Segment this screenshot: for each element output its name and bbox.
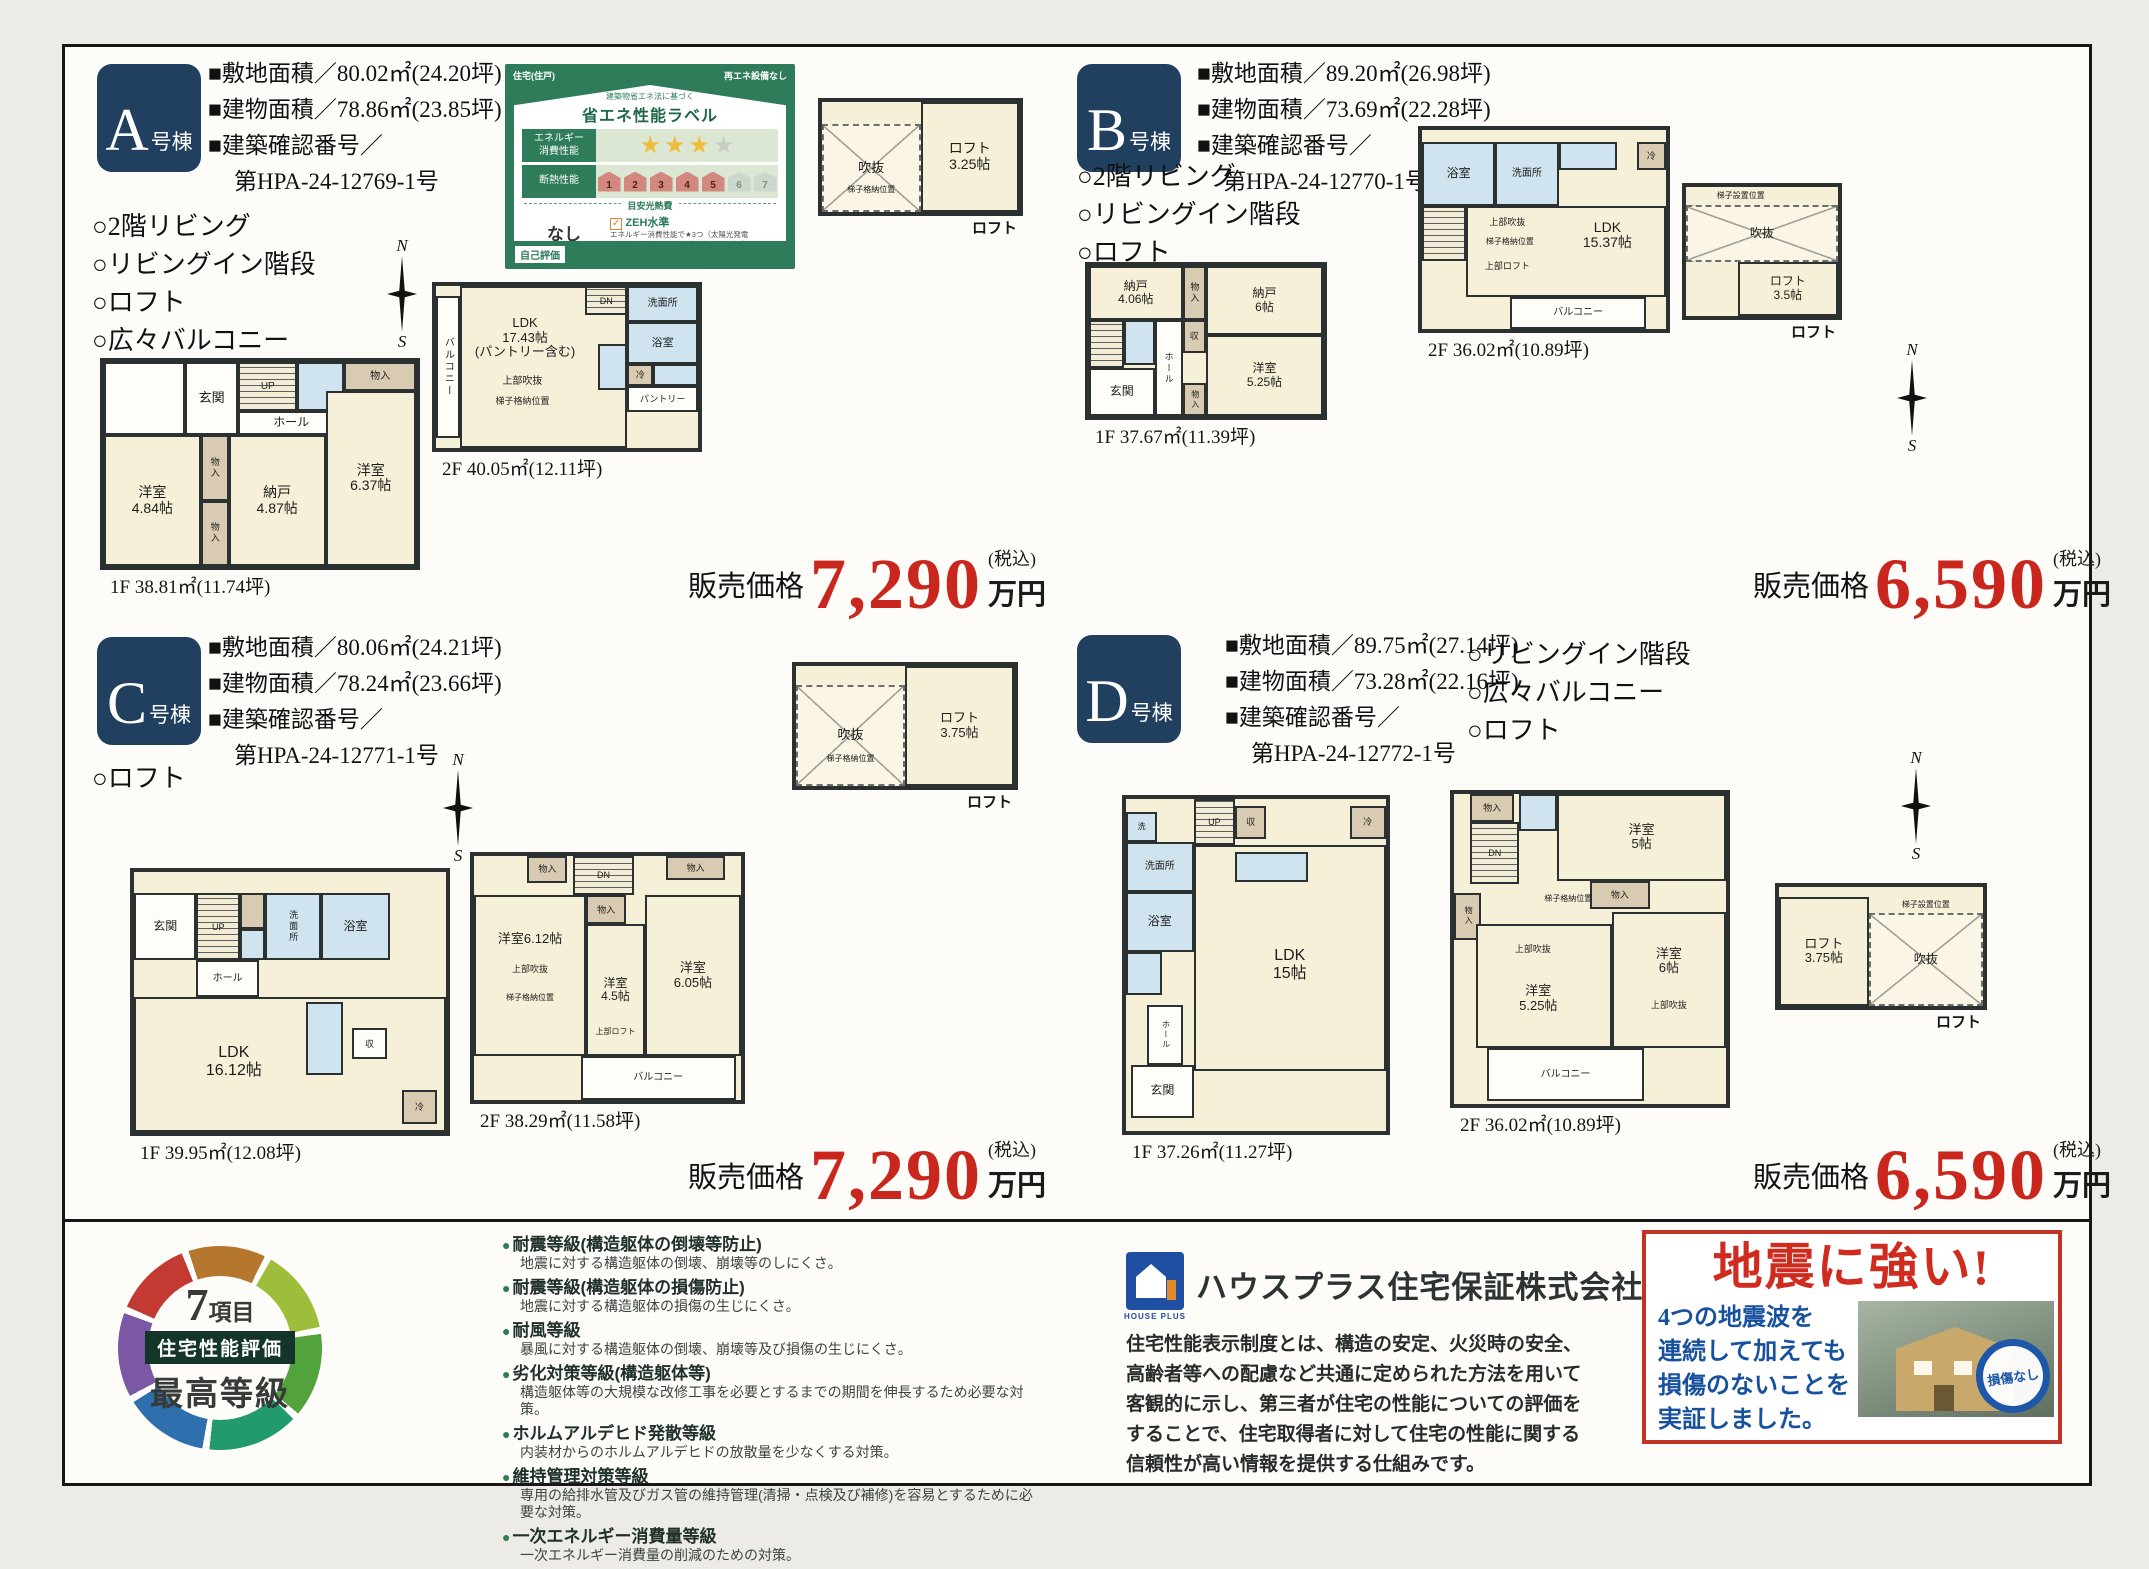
plan-room: [1089, 320, 1124, 368]
compass-south-label: S: [1894, 844, 1938, 864]
price-unit: 万円: [2053, 1162, 2111, 1204]
floor-plan-d-1f: 洗UP収冷洗面所浴室LDK 15帖ホール玄関1F 37.26㎡(11.27坪): [1122, 795, 1390, 1135]
building-d-letter: D: [1085, 676, 1128, 727]
feature-line: ○広々バルコニー: [92, 322, 316, 360]
compass-north-label: N: [436, 750, 480, 770]
plan-room: 吹抜: [822, 124, 921, 212]
plan-room: [1126, 952, 1162, 995]
plan-room: 玄関: [134, 893, 196, 961]
spec-line: ■建築確認番号／: [208, 128, 502, 164]
plan-room: ロフト 3.75帖: [1779, 897, 1869, 1006]
building-b-suffix: 号棟: [1129, 126, 1171, 156]
compass-south-label: S: [380, 332, 424, 352]
floor-caption: 1F 37.67㎡(11.39坪): [1095, 422, 1255, 449]
price-value: 7,290: [810, 551, 982, 617]
plan-room: [306, 1002, 343, 1075]
price-b: 販売価格 6,590 (税込)万円: [1753, 545, 2111, 617]
plan-room: ロフト 3.5帖: [1738, 262, 1838, 316]
zeh-check-icon: ✓: [610, 218, 622, 230]
performance-title: 耐震等級(構造躯体の倒壊等防止): [502, 1234, 1042, 1255]
building-b-badge: B号棟: [1077, 64, 1181, 172]
plan-room: 物入: [666, 856, 725, 880]
plan-room: 洗: [1126, 812, 1157, 842]
plan-room: 上部ロフト: [1471, 257, 1544, 275]
plan-room: 浴室: [321, 893, 390, 961]
plan-room: 洋室 5.25帖: [1206, 335, 1323, 416]
energy-label-subtitle: 建築物省エネ法に基づく: [514, 91, 786, 102]
zeh-note: は考慮しない）、かつ断熱性能で5を達成: [610, 240, 778, 250]
plan-room: バルコニー: [1487, 1048, 1645, 1101]
plan-room: 洋室6.12帖: [479, 924, 580, 953]
performance-item: ホルムアルデヒド発散等級 内装材からのホルムアルデヒドの放散量を少なくする対策。: [502, 1423, 1042, 1461]
price-value: 7,290: [810, 1142, 982, 1208]
floor-caption: 1F 39.95㎡(12.08坪): [140, 1138, 301, 1165]
insulation-level-icon: 7: [754, 172, 777, 192]
cost-divider: 目安光熱費: [524, 203, 776, 210]
plan-room: [1559, 142, 1618, 170]
plan-room: 梯子格納位置: [800, 752, 900, 765]
performance-title: 一次エネルギー消費量等級: [502, 1526, 1042, 1547]
spec-line: ■建物面積／78.24㎡(23.66坪): [208, 666, 502, 702]
plan-room: LDK 17.43帖 (パントリー含む): [467, 309, 582, 367]
compass-star: [387, 256, 417, 332]
plan-room: 納戸 6帖: [1206, 266, 1323, 335]
floor-caption: 1F 38.81㎡(11.74坪): [110, 572, 270, 599]
price-tax: (税込): [988, 1136, 1036, 1162]
plan-room: 梯子設置位置: [1692, 190, 1789, 204]
loft-caption: ロフト: [1936, 1011, 1981, 1032]
plan-room: 洗面所: [265, 893, 321, 961]
plan-room: 物入: [1470, 794, 1514, 822]
plan-room: 物入: [201, 435, 229, 500]
zeh-note: エネルギー消費性能で★3つ（太陽光発電: [610, 230, 778, 240]
spec-line: ■敷地面積／80.02㎡(24.20坪): [208, 56, 502, 92]
plan-room: 物入: [527, 856, 567, 883]
performance-item: 耐震等級(構造躯体の損傷防止) 地震に対する構造躯体の損傷の生じにくさ。: [502, 1277, 1042, 1315]
plan-room: 玄関: [1089, 368, 1155, 416]
plan-room: バルコニー: [581, 1056, 736, 1100]
earthquake-claim: 4つの地震波を 連続して加えても 損傷のないことを 実証しました。: [1658, 1301, 1850, 1437]
plan-room: [653, 364, 698, 387]
performance-item: 劣化対策等級(構造躯体等) 構造躯体等の大規模な改修工事を必要とするまでの期間を…: [502, 1363, 1042, 1418]
insulation-level-icon: 6: [728, 172, 751, 192]
plan-room: 上部吹抜: [485, 958, 576, 980]
building-c-badge: C号棟: [97, 637, 201, 745]
floor-plan-c-2f: 物入DN物入洋室6.12帖上部吹抜梯子格納位置物入洋室 4.5帖上部ロフト洋室 …: [470, 852, 745, 1104]
star-icon: ★: [639, 134, 661, 158]
plan-room: バルコニー: [436, 296, 460, 439]
insulation-label: 断熱性能: [522, 165, 596, 198]
plan-room: 納戸 4.87帖: [229, 435, 326, 566]
plan-room: 物入: [1183, 383, 1206, 416]
compass-icon: N S: [436, 750, 480, 866]
plan-room: DN: [585, 286, 627, 315]
compass-star: [1897, 360, 1927, 436]
spec-line: ■建物面積／73.69㎡(22.28坪): [1197, 92, 1491, 128]
plan-room: [240, 893, 265, 929]
plan-room: 上部吹抜: [1471, 214, 1544, 232]
price-label: 販売価格: [688, 563, 804, 617]
plan-room: 玄関: [185, 362, 238, 435]
performance-desc: 専用の給排水管及びガス管の維持管理(清掃・点検及び補修)を容易とするために必要な…: [502, 1487, 1042, 1521]
plan-room: 冷: [1350, 806, 1386, 839]
plan-room: 洋室 6.05帖: [645, 895, 741, 1056]
feature-line: ○2階リビング: [1077, 158, 1301, 196]
plan-room: 冷: [627, 364, 653, 387]
feature-line: ○2階リビング: [92, 208, 316, 246]
plan-room: 浴室: [1126, 892, 1194, 952]
energy-label-corner-left: 住宅(住戸): [513, 69, 555, 82]
compass-north-label: N: [1894, 748, 1938, 768]
self-evaluation-tag: 自己評価: [515, 246, 565, 263]
insulation-level-icon: 1: [598, 172, 621, 192]
plan-room: 吹抜: [796, 685, 905, 786]
plan-room: 梯子格納位置: [482, 988, 578, 1010]
plan-room: 物入: [1183, 266, 1206, 320]
energy-label-title: 省エネ性能ラベル: [514, 102, 786, 126]
feature-line: ○広々バルコニー: [1467, 674, 1691, 712]
building-d-suffix: 号棟: [1131, 697, 1173, 727]
plan-room: UP: [238, 362, 297, 411]
feature-line: ○ロフト: [1467, 712, 1691, 750]
floor-caption: 2F 36.02㎡(10.89坪): [1428, 335, 1589, 362]
floor-plan-d-2f: 物入DN洋室 5帖物入梯子格納位置物入上部吹抜洋室 5.25帖洋室 6帖上部吹抜…: [1450, 790, 1730, 1108]
badge-number-label: 項目: [209, 1300, 255, 1325]
floor-plan-b-1f: 納戸 4.06帖物入納戸 6帖収ホール玄関洋室 5.25帖物入1F 37.67㎡…: [1085, 262, 1327, 420]
spec-line: 第HPA-24-12769-1号: [208, 164, 502, 200]
price-tax: (税込): [2053, 1136, 2101, 1162]
badge-band: 住宅性能評価: [145, 1331, 295, 1364]
plan-room: 吹抜: [1686, 205, 1838, 262]
plan-room: [104, 362, 185, 435]
performance-title: 耐震等級(構造躯体の損傷防止): [502, 1277, 1042, 1298]
plan-room: 梯子格納位置: [1468, 233, 1551, 251]
plan-room: UP: [1194, 799, 1236, 845]
insulation-level-icon: 3: [650, 172, 673, 192]
performance-title: 耐風等級: [502, 1320, 1042, 1341]
price-label: 販売価格: [1753, 1154, 1869, 1208]
floor-caption: 1F 37.26㎡(11.27坪): [1132, 1137, 1292, 1164]
building-b-features: ○2階リビング ○リビングイン階段 ○ロフト: [1077, 158, 1301, 272]
floor-plan-c-1f: 玄関UPホール洗面所浴室LDK 16.12帖収冷1F 39.95㎡(12.08坪…: [130, 868, 450, 1136]
plan-room: ロフト 3.75帖: [905, 666, 1014, 786]
price-tax: (税込): [988, 545, 1036, 571]
building-d-badge: D号棟: [1077, 635, 1181, 743]
compass-icon: N S: [380, 236, 424, 352]
energy-star-rating: ★★★★: [596, 129, 778, 162]
plan-room: 梯子格納位置: [1525, 887, 1612, 912]
performance-title: 劣化対策等級(構造躯体等): [502, 1363, 1042, 1384]
price-unit: 万円: [988, 1162, 1046, 1204]
performance-title: 維持管理対策等級: [502, 1466, 1042, 1487]
plan-room: [598, 344, 627, 389]
plan-room: 洋室 5.25帖: [1498, 968, 1580, 1030]
earthquake-title: 地震に強い!: [1658, 1240, 2046, 1295]
plan-room: 収: [352, 1028, 386, 1059]
plan-room: 洋室 6帖: [1628, 937, 1710, 987]
floor-caption: 2F 36.02㎡(10.89坪): [1460, 1110, 1621, 1137]
performance-item: 耐震等級(構造躯体の倒壊等防止) 地震に対する構造躯体の倒壊、崩壊等のしにくさ。: [502, 1234, 1042, 1272]
floor-plan-a-loft: 吹抜梯子格納位置ロフト 3.25帖ロフト: [818, 98, 1023, 216]
loft-caption: ロフト: [1791, 321, 1836, 342]
plan-room: 玄関: [1131, 1065, 1193, 1118]
plan-room: 洗面所: [1126, 842, 1194, 892]
plan-room: 洗面所: [627, 286, 698, 322]
loft-caption: ロフト: [967, 791, 1012, 812]
plan-room: 浴室: [627, 322, 698, 364]
performance-desc: 地震に対する構造躯体の倒壊、崩壊等のしにくさ。: [502, 1255, 1042, 1272]
plan-room: 収: [1235, 806, 1266, 839]
floor-plan-a-2f: バルコニーLDK 17.43帖 (パントリー含む)上部吹抜梯子格納位置DN洗面所…: [432, 282, 702, 452]
spec-line: ■敷地面積／80.06㎡(24.21坪): [208, 630, 502, 666]
performance-title: ホルムアルデヒド発散等級: [502, 1423, 1042, 1444]
floor-plan-a-1f: 玄関UPホール物入洋室 4.84帖物入物入納戸 4.87帖洋室 6.37帖1F …: [100, 358, 420, 570]
plan-room: [1422, 206, 1466, 262]
plan-room: 梯子格納位置: [473, 393, 573, 409]
plan-room: 梯子設置位置: [1873, 899, 1979, 912]
insulation-level-icon: 4: [676, 172, 699, 192]
performance-items: 耐震等級(構造躯体の倒壊等防止) 地震に対する構造躯体の倒壊、崩壊等のしにくさ。…: [502, 1234, 1042, 1569]
cost-value: なし: [522, 214, 606, 250]
plan-room: 納戸 4.06帖: [1089, 266, 1183, 320]
feature-line: ○リビングイン階段: [1467, 636, 1691, 674]
building-a-badge: A号棟: [97, 64, 201, 172]
compass-star: [443, 770, 473, 846]
feature-line: ○リビングイン階段: [1077, 196, 1301, 234]
building-a-suffix: 号棟: [151, 126, 193, 156]
cost-label: 目安光熱費: [621, 201, 678, 211]
plan-room: 上部吹抜: [1492, 937, 1574, 962]
plan-room: パントリー: [627, 386, 698, 412]
zeh-title: ZEH水準: [625, 217, 669, 229]
plan-room: 浴室: [1422, 142, 1495, 206]
floor-plan-d-loft: ロフト 3.75帖梯子設置位置吹抜ロフト: [1775, 883, 1987, 1010]
plan-room: [1235, 852, 1308, 882]
performance-item: 維持管理対策等級 専用の給排水管及びガス管の維持管理(清掃・点検及び補修)を容易…: [502, 1466, 1042, 1521]
compass-north-label: N: [1890, 340, 1934, 360]
plan-room: ホール: [1147, 1005, 1183, 1065]
building-b-letter: B: [1087, 105, 1127, 156]
performance-desc: 構造躯体等の大規模な改修工事を必要とするまでの期間を伸長するため必要な対策。: [502, 1384, 1042, 1418]
performance-ring-badge: 7項目 住宅性能評価 最高等級: [118, 1246, 322, 1450]
building-a-specs: ■敷地面積／80.02㎡(24.20坪) ■建物面積／78.86㎡(23.85坪…: [208, 56, 502, 200]
zeh-block: ✓ZEH水準 エネルギー消費性能で★3つ（太陽光発電 は考慮しない）、かつ断熱性…: [606, 214, 778, 250]
plan-room: 物入: [201, 501, 229, 566]
compass-icon: N S: [1890, 340, 1934, 456]
plan-room: DN: [1470, 822, 1519, 884]
guarantee-company-name: ハウスプラス住宅保証株式会社: [1196, 1262, 1643, 1307]
performance-desc: 内装材からのホルムアルデヒドの放散量を少なくする対策。: [502, 1444, 1042, 1461]
price-a: 販売価格 7,290 (税込)万円: [688, 545, 1046, 617]
insulation-level-icon: 2: [624, 172, 647, 192]
plan-room: 上部吹抜: [478, 373, 567, 389]
plan-room: 洗面所: [1495, 142, 1558, 206]
spec-line: ■建築確認番号／: [208, 702, 502, 738]
plan-room: DN: [573, 856, 634, 895]
plan-room: 洋室 5帖: [1557, 794, 1726, 881]
plan-room: 物入: [586, 895, 626, 924]
performance-desc: 一次エネルギー消費量の削減のための対策。: [502, 1547, 1042, 1564]
plan-room: 梯子格納位置: [826, 183, 917, 196]
building-a-features: ○2階リビング ○リビングイン階段 ○ロフト ○広々バルコニー: [92, 208, 316, 360]
performance-desc: 暴風に対する構造躯体の倒壊、崩壊等及び損傷の生じにくさ。: [502, 1341, 1042, 1358]
building-c-suffix: 号棟: [149, 699, 191, 729]
plan-room: LDK 15帖: [1246, 932, 1334, 998]
plan-room: [240, 929, 265, 960]
plan-room: ホール: [196, 960, 258, 996]
earthquake-resistance-box: 地震に強い! 4つの地震波を 連続して加えても 損傷のないことを 実証しました。…: [1642, 1230, 2062, 1444]
performance-item: 一次エネルギー消費量等級 一次エネルギー消費量の削減のための対策。: [502, 1526, 1042, 1564]
price-value: 6,590: [1875, 1142, 2047, 1208]
section-divider: [62, 1219, 2092, 1222]
plan-room: ロフト 3.25帖: [921, 102, 1020, 212]
energy-label-house-panel: 建築物省エネ法に基づく 省エネ性能ラベル エネルギー 消費性能 ★★★★ 断熱性…: [514, 85, 786, 241]
plan-room: LDK 16.12帖: [171, 1028, 296, 1096]
shake-test-photo: 損傷なし: [1858, 1301, 2054, 1417]
floor-caption: 2F 40.05㎡(12.11坪): [442, 454, 602, 481]
price-c: 販売価格 7,290 (税込)万円: [688, 1136, 1046, 1208]
house-plus-logo-icon: [1126, 1252, 1184, 1310]
loft-caption: ロフト: [972, 217, 1017, 238]
price-d: 販売価格 6,590 (税込)万円: [1753, 1136, 2111, 1208]
price-unit: 万円: [2053, 571, 2111, 613]
performance-system-description: 住宅性能表示制度とは、構造の安定、火災時の安全、高齢者等への配慮など共通に定めら…: [1126, 1330, 1588, 1480]
building-c-features: ○ロフト: [92, 760, 186, 798]
feature-line: ○リビングイン階段: [92, 246, 316, 284]
plan-room: 上部吹抜: [1625, 992, 1712, 1017]
floor-plan-b-loft: 梯子設置位置吹抜ロフト 3.5帖ロフト: [1682, 183, 1842, 320]
price-label: 販売価格: [688, 1154, 804, 1208]
plan-room: ホール: [1155, 320, 1183, 416]
compass-north-label: N: [380, 236, 424, 256]
compass-star: [1901, 768, 1931, 844]
plan-room: 上部ロフト: [589, 1022, 642, 1044]
compass-south-label: S: [436, 846, 480, 866]
plan-room: 吹抜: [1869, 913, 1983, 1006]
plan-room: [1519, 794, 1557, 831]
building-d-features: ○リビングイン階段 ○広々バルコニー ○ロフト: [1467, 636, 1691, 750]
price-tax: (税込): [2053, 545, 2101, 571]
spec-line: ■敷地面積／89.20㎡(26.98坪): [1197, 56, 1491, 92]
price-value: 6,590: [1875, 551, 2047, 617]
floor-plan-b-2f: 浴室洗面所冷LDK 15.37帖上部吹抜梯子格納位置上部ロフトバルコニー2F 3…: [1418, 126, 1670, 333]
plan-room: 物入: [344, 362, 416, 391]
plan-room: 洋室 4.84帖: [104, 435, 201, 566]
energy-label-corner-right: 再エネ設備なし: [724, 69, 787, 82]
plan-room: 冷: [1637, 142, 1666, 170]
insulation-level-icon: 5: [702, 172, 725, 192]
performance-desc: 地震に対する構造躯体の損傷の生じにくさ。: [502, 1298, 1042, 1315]
badge-grade: 最高等級: [150, 1367, 290, 1415]
energy-consumption-label: エネルギー 消費性能: [522, 129, 596, 162]
plan-room: 収: [1183, 320, 1206, 353]
energy-label-header: 住宅(住戸) 再エネ設備なし: [505, 64, 795, 82]
plan-room: バルコニー: [1510, 297, 1647, 329]
compass-icon: N S: [1894, 748, 1938, 864]
spec-line: ■建物面積／78.86㎡(23.85坪): [208, 92, 502, 128]
feature-line: ○ロフト: [92, 760, 186, 798]
building-c-letter: C: [107, 678, 147, 729]
price-unit: 万円: [988, 571, 1046, 613]
building-a-letter: A: [105, 105, 148, 156]
compass-south-label: S: [1890, 436, 1934, 456]
star-icon: ★: [664, 134, 686, 158]
floor-plan-c-loft: 吹抜梯子格納位置ロフト 3.75帖ロフト: [792, 662, 1018, 790]
plan-room: [1124, 320, 1154, 365]
star-icon: ★: [713, 134, 735, 158]
feature-line: ○ロフト: [92, 284, 316, 322]
floor-caption: 2F 38.29㎡(11.58坪): [480, 1106, 640, 1133]
plan-room: 冷: [402, 1090, 436, 1124]
insulation-rating: 1234567: [596, 165, 778, 198]
plan-room: 洋室 6.37帖: [326, 391, 416, 566]
star-icon: ★: [689, 134, 711, 158]
performance-item: 耐風等級 暴風に対する構造躯体の倒壊、崩壊等及び損傷の生じにくさ。: [502, 1320, 1042, 1358]
energy-performance-label: 住宅(住戸) 再エネ設備なし 建築物省エネ法に基づく 省エネ性能ラベル エネルギ…: [505, 64, 795, 269]
badge-number: 7: [186, 1279, 209, 1330]
price-label: 販売価格: [1753, 563, 1869, 617]
house-plus-logo-text: HOUSE PLUS: [1124, 1312, 1186, 1321]
plan-room: UP: [196, 893, 240, 961]
plan-room: LDK 15.37帖: [1559, 218, 1657, 254]
